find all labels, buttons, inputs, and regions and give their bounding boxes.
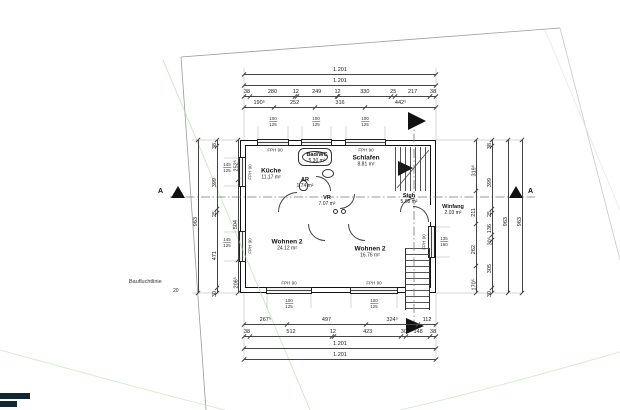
window-spec-top1: 100125 <box>269 116 277 127</box>
window-spec-top3: 100125 <box>361 116 369 127</box>
room-label-kueche: Küche 11.17 m² <box>261 168 281 181</box>
window-spec-top2: 100125 <box>312 116 320 127</box>
window-spec-bottom1: 100125 <box>285 298 293 309</box>
dim-chain-right-outer-1: 963 <box>500 140 510 293</box>
dim-chain-top-1: 1.201 <box>244 66 436 76</box>
dim-chain-right-outer-2: 963 <box>514 140 524 293</box>
corner-logo-bar-1 <box>0 393 30 399</box>
dim-chain-left-mid: 383992547130 <box>209 140 219 293</box>
room-label-wohnen2-b: Wohnen 2 16.76 m² <box>355 246 386 259</box>
dim-chain-left-inner: 252⁵504206⁵ <box>230 140 240 293</box>
window-label-right1: FPH 90 <box>422 234 427 249</box>
section-letter-a-right: A <box>528 188 533 195</box>
dim-chain-left-outer: 963 <box>190 140 200 293</box>
room-label-stgh: Stgh 5.08 m² <box>401 193 418 205</box>
dim-chain-top-3: 3828012249123302521738 <box>244 88 436 98</box>
section-letter-a-left: A <box>158 188 163 195</box>
green-curve-bottom-left <box>0 350 225 410</box>
room-label-bad-wc: Bad/WC 5.30 m² <box>306 152 327 164</box>
green-line-right <box>545 30 620 210</box>
boundary-line-right <box>560 28 620 260</box>
boundary-label: Baufluchtlinie <box>129 279 162 285</box>
dim-chain-bottom-4: 1.201 <box>244 351 436 361</box>
dim-chain-bottom-2: 38512124233014838 <box>244 328 436 338</box>
room-label-vr: VR 7.07 m² <box>319 195 336 207</box>
section-triangle-left <box>171 186 185 198</box>
small-dim-20: 20 <box>173 288 179 294</box>
window-label-left2: FPH 90 <box>248 238 253 253</box>
room-label-ar: AR 1.74 m² <box>297 177 314 189</box>
dim-chain-top-2: 1.201 <box>244 77 436 87</box>
stair-cut-mark <box>398 161 413 176</box>
window-label-top1: FPH 90 <box>267 148 282 153</box>
floor-plan-canvas: Küche 11.17 m² Bad/WC 5.30 m² Schlafen 8… <box>0 0 620 410</box>
corner-logo-bar-2 <box>0 401 17 407</box>
dim-chain-bottom-1: 267⁵497324⁵112 <box>244 316 436 326</box>
window-label-top2: FPH 90 <box>358 148 373 153</box>
dim-chain-right-inner: 319⁵211262170⁵ <box>468 140 478 293</box>
window-spec-bottom2: 100125 <box>370 298 378 309</box>
window-label-bottom2: FPH 90 <box>366 281 381 286</box>
dim-chain-right-mid: 383992513630⁵30530 <box>484 140 494 293</box>
dim-chain-bottom-3: 1.201 <box>244 340 436 350</box>
window-label-left1: FPH 90 <box>248 164 253 179</box>
room-label-winfang: Winfang 2.03 m² <box>442 204 464 216</box>
section-flag-top <box>408 112 426 130</box>
room-label-schlafen: Schlafen 8.81 m² <box>352 155 379 168</box>
window-spec-right1: 135160 <box>440 236 448 247</box>
room-label-wohnen2-a: Wohnen 2 24.12 m² <box>272 239 303 252</box>
boundary-line-top <box>181 28 560 57</box>
dim-chain-top-4: 190⁵252316442⁵ <box>244 99 436 109</box>
window-label-bottom1: FPH 90 <box>281 281 296 286</box>
